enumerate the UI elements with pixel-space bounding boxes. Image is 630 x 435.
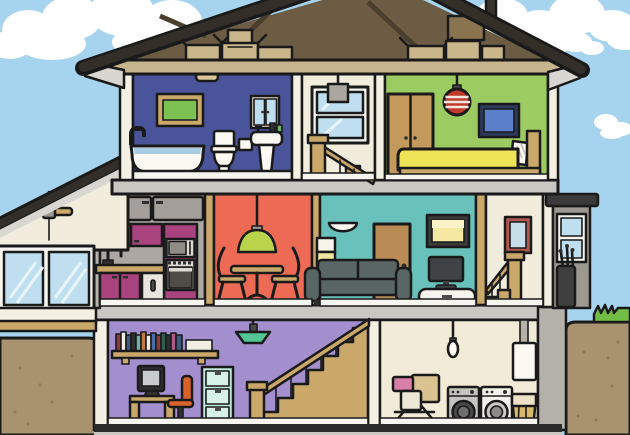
- second-floor: [120, 73, 558, 184]
- kitchen-top-cupboard-right: [153, 197, 203, 220]
- basement-left-wall: [94, 320, 108, 430]
- basement-slab: [94, 424, 562, 432]
- framed-mirror: [505, 217, 531, 253]
- earth-left: [0, 338, 102, 435]
- hallway: [486, 194, 543, 305]
- bedroom-picture: [479, 104, 519, 137]
- shelf-box: [186, 340, 212, 351]
- computer-monitor: [138, 366, 164, 396]
- sunroom-windows: [0, 246, 94, 310]
- second-floor-left-wall: [120, 74, 133, 180]
- illustration-stage: [0, 0, 630, 435]
- attic-floor-band: [103, 60, 563, 74]
- shelf-board: [112, 351, 218, 358]
- oven: [167, 260, 195, 290]
- living-room: [305, 194, 476, 305]
- bedroom: [385, 74, 548, 180]
- porch-roof: [546, 194, 598, 206]
- landing-floor: [302, 173, 375, 180]
- grass: [594, 305, 630, 322]
- basement-ceiling-band: [88, 305, 562, 320]
- wall-bathroom-landing: [292, 74, 302, 180]
- basement: [88, 305, 566, 435]
- foundation-right: [538, 307, 566, 430]
- bedroom-floor: [385, 174, 548, 180]
- hallway-floor: [486, 299, 543, 306]
- towel-cream: [401, 391, 421, 410]
- books: [116, 332, 182, 351]
- landing: [302, 74, 375, 184]
- dining-room: [214, 194, 312, 305]
- dining-floor: [214, 299, 312, 306]
- bathroom-picture: [157, 94, 203, 126]
- house-cutaway-illustration: [0, 0, 630, 435]
- bathroom-floor: [133, 171, 292, 180]
- earth-right: [566, 322, 630, 435]
- wall-living-hallway: [476, 194, 486, 305]
- wall-kitchen-dining: [205, 194, 214, 305]
- bathroom: [131, 73, 292, 180]
- wall-light: [329, 223, 357, 231]
- hallway-right-wall: [543, 194, 553, 307]
- basement-divider-wall: [368, 320, 380, 426]
- second-floor-band: [112, 180, 558, 194]
- porch: [546, 194, 598, 308]
- wall-landing-bedroom: [375, 74, 385, 180]
- towel-pink: [393, 377, 413, 391]
- sunroom-baseboard: [0, 321, 96, 331]
- picture-yellow: [427, 215, 469, 247]
- kitchen-floor: [100, 299, 205, 306]
- microwave: [167, 239, 195, 257]
- living-floor: [320, 299, 476, 306]
